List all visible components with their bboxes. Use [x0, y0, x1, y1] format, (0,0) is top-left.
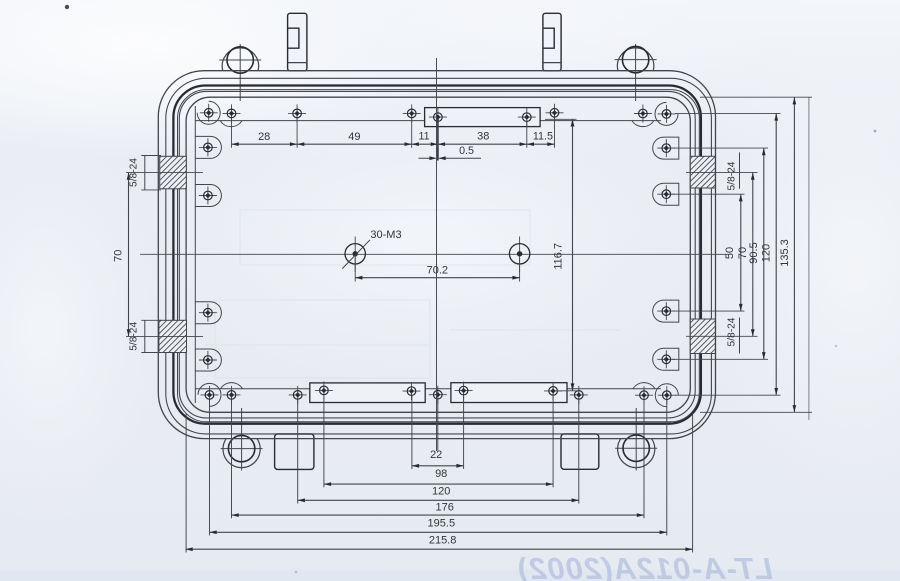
svg-text:LT-A-012A(2002): LT-A-012A(2002) [517, 551, 773, 581]
svg-text:90.5: 90.5 [748, 242, 760, 263]
svg-text:11.5: 11.5 [533, 131, 553, 143]
svg-text:70.2: 70.2 [427, 265, 448, 277]
svg-text:70: 70 [113, 250, 125, 262]
svg-text:22: 22 [430, 449, 442, 461]
svg-text:195.5: 195.5 [428, 517, 456, 529]
svg-text:5/8-24: 5/8-24 [129, 322, 140, 351]
svg-text:135.3: 135.3 [779, 239, 791, 267]
svg-text:215.8: 215.8 [429, 535, 457, 547]
svg-text:120: 120 [761, 244, 773, 262]
svg-text:176: 176 [436, 501, 454, 513]
svg-text:5/8-24: 5/8-24 [727, 161, 738, 190]
svg-text:5/8-24: 5/8-24 [727, 317, 738, 346]
svg-text:28: 28 [258, 131, 270, 143]
svg-text:38: 38 [477, 131, 489, 143]
svg-text:98: 98 [435, 468, 447, 480]
svg-text:5/8-24: 5/8-24 [129, 158, 140, 187]
svg-text:50: 50 [724, 247, 736, 259]
svg-text:11: 11 [418, 131, 429, 143]
svg-text:116.7: 116.7 [553, 243, 565, 270]
svg-text:30-M3: 30-M3 [370, 229, 401, 241]
svg-text:0.5: 0.5 [459, 145, 474, 157]
svg-text:70: 70 [737, 247, 749, 259]
svg-text:120: 120 [432, 485, 450, 497]
svg-text:49: 49 [348, 131, 360, 143]
